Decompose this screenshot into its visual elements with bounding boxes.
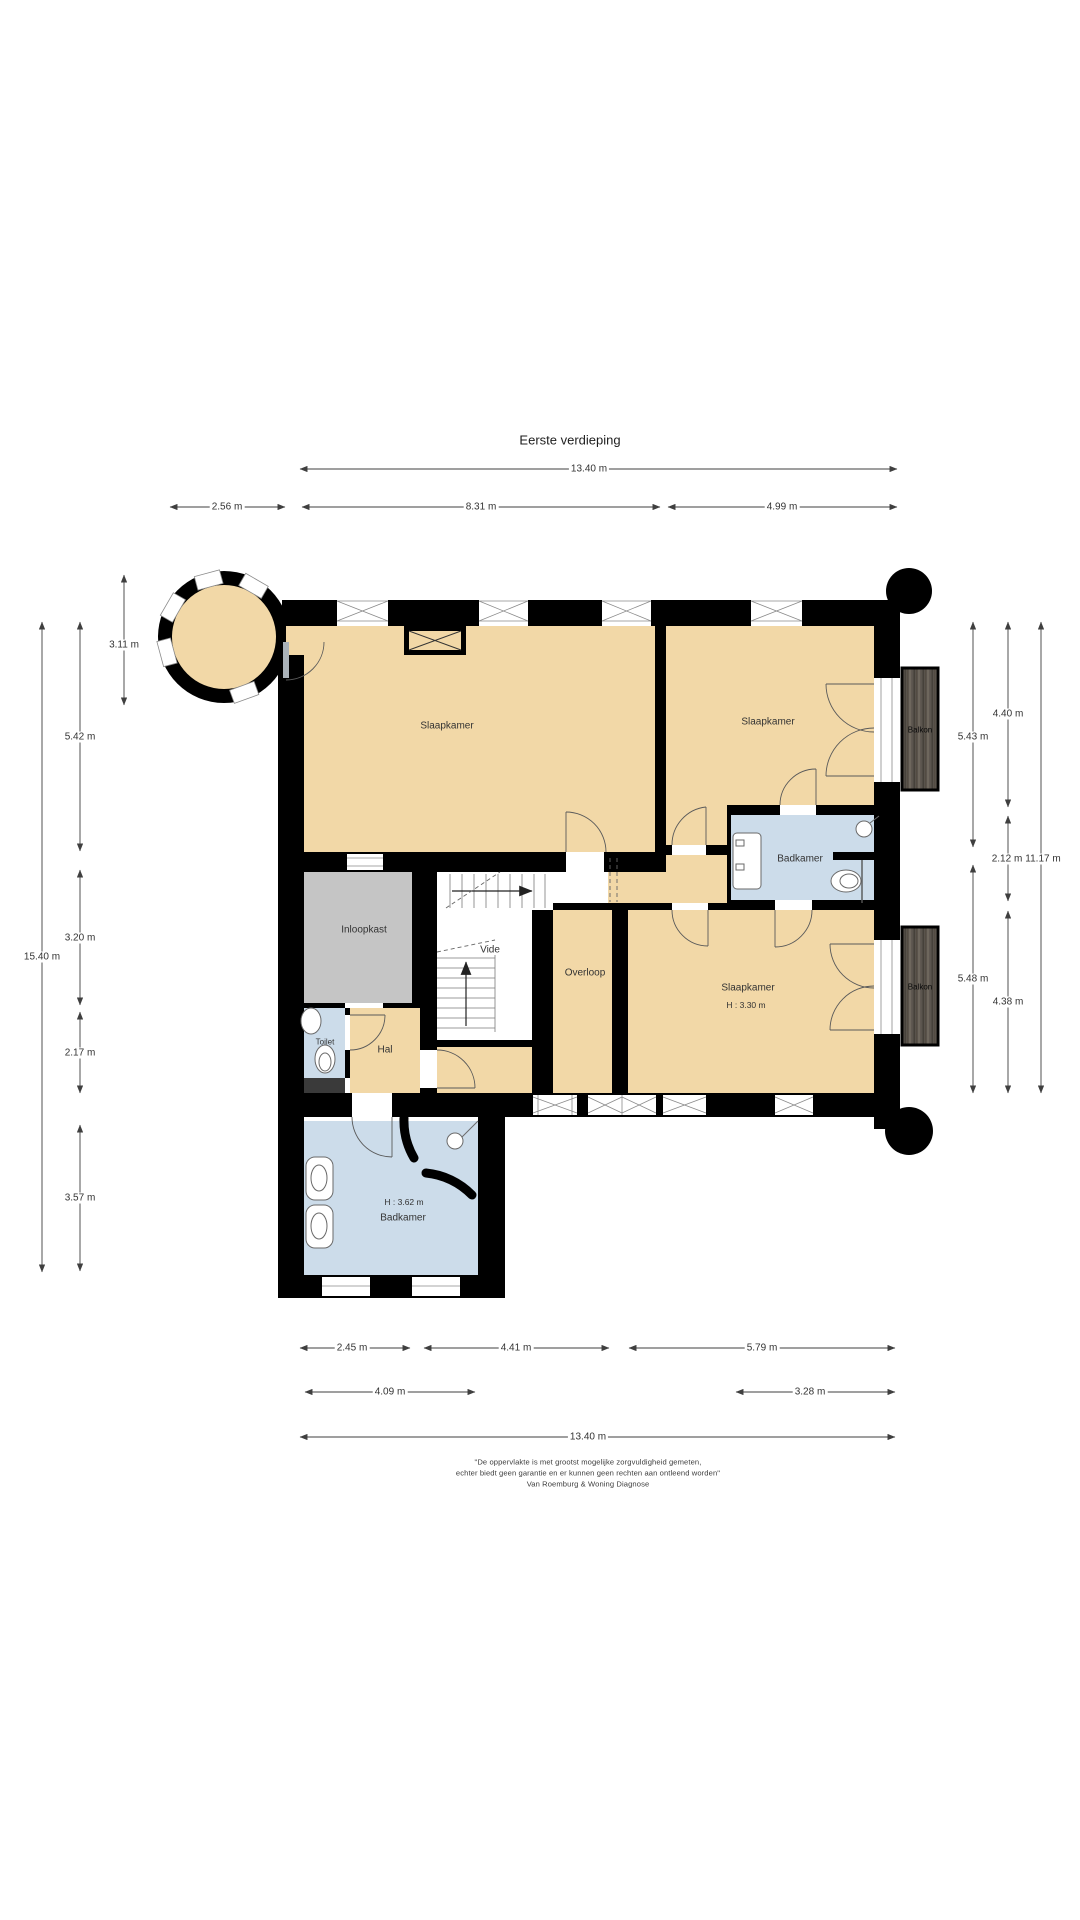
dim-label: 2.45 m [335,1343,370,1354]
dim-label: 4.41 m [499,1343,534,1354]
footer-disclaimer-line1: "De oppervlakte is met grootst mogelijke… [475,1458,702,1467]
dim-label: 2.12 m [990,854,1025,865]
room-bedroom-large-floor [304,626,655,852]
dim-label: 4.09 m [373,1387,408,1398]
dim-label: 2.56 m [210,502,245,513]
room-closet-floor [304,872,412,1003]
turret-round-tower [157,570,290,704]
dim-label: 4.38 m [991,997,1026,1008]
dim-label: 8.31 m [464,502,499,513]
window-icon [775,1095,813,1115]
balcony-label-bottom: Balkon [908,983,932,992]
balcony-label-top: Balkon [908,726,932,735]
page-title: Eerste verdieping [519,433,620,448]
window-icon [479,596,528,626]
window-icon [602,596,651,626]
room-label-bathroom-bottom-height: H : 3.62 m [384,1197,423,1207]
dim-label: 3.11 m [107,640,141,651]
footer-disclaimer-line2: echter biedt geen garantie en er kunnen … [456,1469,720,1478]
dim-label: 3.20 m [63,933,98,944]
sink-icon [301,1008,321,1034]
dim-label: 3.57 m [63,1193,98,1204]
dim-label: 5.79 m [745,1343,780,1354]
turret-bottomright [885,1107,933,1155]
window-icon [751,596,802,626]
room-label-closet: Inloopkast [341,925,387,936]
dim-label: 2.17 m [63,1048,98,1059]
dim-label: 5.42 m [63,732,98,743]
window-icon [533,1095,577,1115]
dim-label: 13.40 m [568,1432,608,1443]
room-label-bedroom-large: Slaapkamer [420,721,473,732]
room-label-bedroom-bottom-height: H : 3.30 m [726,1000,765,1010]
window-icon [663,1095,706,1115]
dim-label: 15.40 m [22,952,62,963]
footer-company: Van Roemburg & Woning Diagnose [527,1480,650,1489]
sink-icon [733,833,761,889]
room-label-bathroom-right: Badkamer [777,854,823,865]
dim-label: 4.99 m [765,502,800,513]
sink-icon [306,1205,333,1248]
window-icon [322,1277,370,1296]
toilet-icon [831,870,861,892]
dim-label: 13.40 m [569,464,609,475]
room-label-bedroom-bottom: Slaapkamer [721,983,774,994]
toilet-icon [315,1045,335,1073]
dim-label: 3.28 m [793,1387,828,1398]
window-icon [337,596,388,626]
dim-label: 5.48 m [956,974,991,985]
chimney-icon [404,626,466,655]
dim-label: 11.17 m [1023,854,1062,865]
window-icon [588,1095,656,1115]
room-label-toilet: Toilet [316,1038,335,1047]
room-label-landing: Overloop [565,968,606,979]
dim-label: 5.43 m [956,732,991,743]
sink-icon [306,1157,333,1200]
floor-plan-svg [0,0,1080,1920]
room-label-bathroom-bottom: Badkamer [380,1213,426,1224]
floorplan-page: Eerste verdieping Slaapkamer Slaapkamer … [0,0,1080,1920]
dim-label: 4.40 m [991,709,1026,720]
turret-topright [886,568,932,614]
room-label-void: Vide [480,945,500,956]
room-label-hall: Hal [377,1045,392,1056]
room-label-bedroom-topright: Slaapkamer [741,717,794,728]
room-bedroom-topright-floor [666,626,874,805]
window-icon [412,1277,460,1296]
dark-step [304,1078,345,1093]
